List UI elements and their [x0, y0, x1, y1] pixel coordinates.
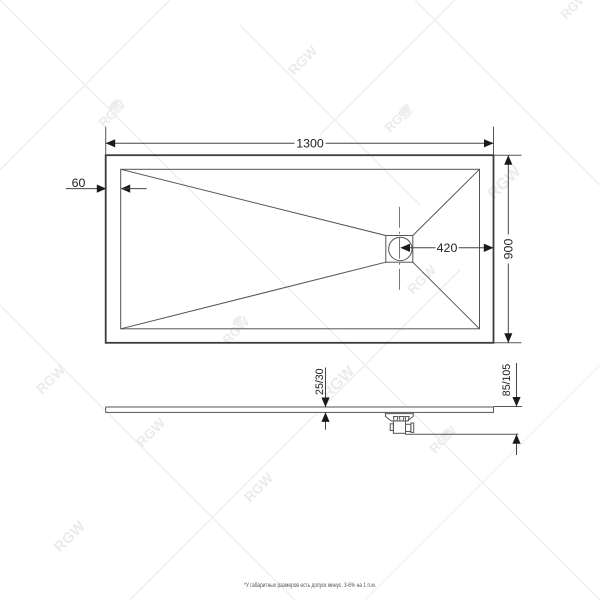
- svg-text:RGW: RGW: [241, 469, 277, 505]
- svg-text:RGW: RGW: [285, 42, 321, 78]
- svg-text:*У габаритных размеров есть до: *У габаритных размеров есть допуск минус…: [244, 581, 376, 589]
- svg-text:1300: 1300: [296, 137, 324, 151]
- svg-text:RGW: RGW: [427, 423, 461, 457]
- svg-text:RGW: RGW: [33, 361, 69, 397]
- svg-text:RGW: RGW: [404, 261, 440, 297]
- svg-text:25/30: 25/30: [314, 368, 326, 395]
- svg-text:RGW: RGW: [485, 163, 525, 203]
- svg-text:RGW: RGW: [558, 0, 592, 22]
- svg-text:RGW: RGW: [133, 414, 169, 450]
- svg-text:420: 420: [437, 241, 458, 255]
- svg-text:60: 60: [72, 176, 86, 190]
- svg-text:900: 900: [502, 239, 516, 260]
- svg-text:RGW: RGW: [382, 102, 416, 136]
- svg-text:85/105: 85/105: [501, 364, 513, 397]
- svg-text:RGW: RGW: [51, 517, 90, 556]
